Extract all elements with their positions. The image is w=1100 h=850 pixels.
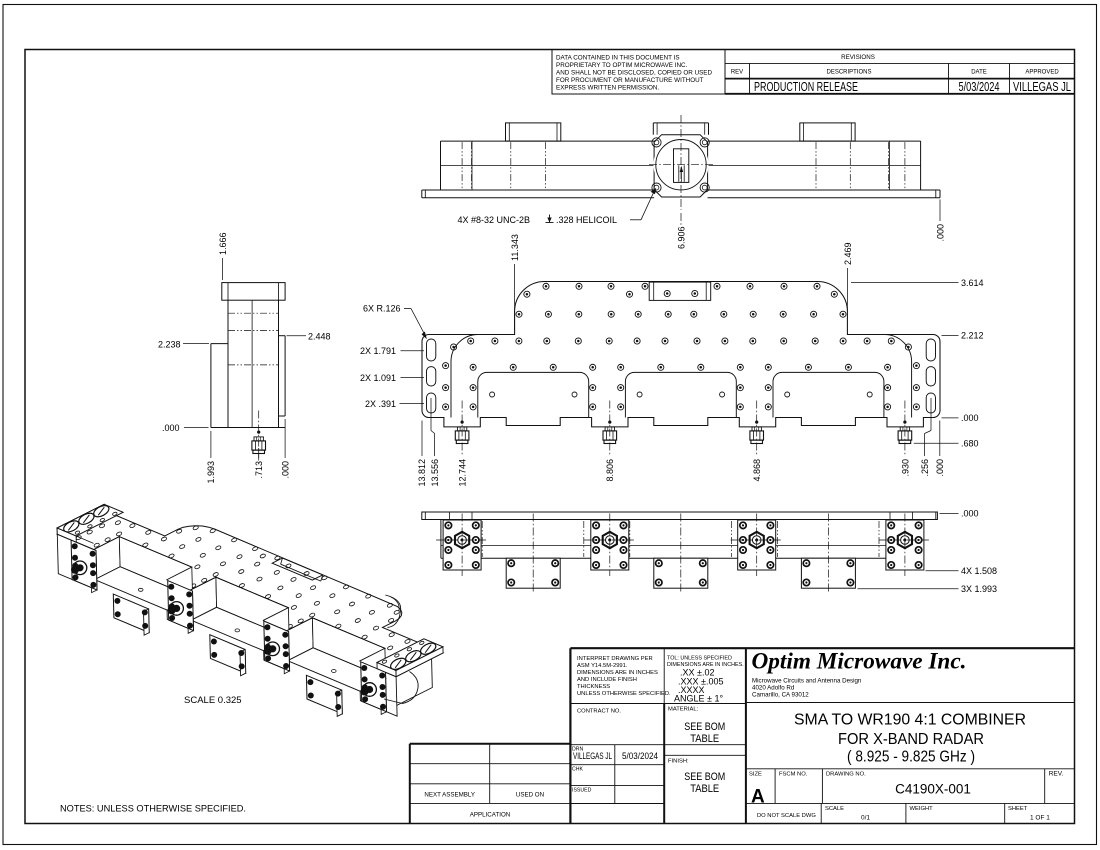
svg-text:2.238: 2.238: [158, 340, 181, 350]
svg-text:VILLEGAS JL: VILLEGAS JL: [573, 751, 612, 761]
svg-text:0/1: 0/1: [861, 815, 870, 822]
svg-text:Microwave Circuits and Antenna: Microwave Circuits and Antenna Design: [752, 678, 862, 685]
svg-text:3.614: 3.614: [961, 278, 984, 288]
svg-text:SCALE 0.325: SCALE 0.325: [184, 695, 242, 706]
svg-text:NOTES: UNLESS OTHERWISE SPECIF: NOTES: UNLESS OTHERWISE SPECIFIED.: [60, 804, 246, 815]
svg-text:C4190X-001: C4190X-001: [895, 782, 971, 797]
svg-text:4020 Adolfo Rd: 4020 Adolfo Rd: [752, 685, 795, 692]
svg-text:1 OF 1: 1 OF 1: [1030, 815, 1050, 822]
svg-text:VILLEGAS JL: VILLEGAS JL: [1013, 80, 1071, 94]
svg-text:5/03/2024: 5/03/2024: [959, 80, 1000, 94]
svg-text:TABLE: TABLE: [690, 733, 719, 745]
svg-text:MATERIAL:: MATERIAL:: [668, 707, 699, 713]
svg-text:.000: .000: [935, 459, 945, 477]
svg-text:DESCRIPTIONS: DESCRIPTIONS: [826, 70, 871, 76]
svg-text:ANGLE ± 1°: ANGLE ± 1°: [674, 694, 723, 704]
svg-text:.680: .680: [961, 439, 979, 449]
svg-text:.713: .713: [254, 461, 264, 479]
svg-text:.000: .000: [280, 461, 290, 479]
svg-text:FOR X-BAND RADAR: FOR X-BAND RADAR: [838, 731, 984, 748]
svg-text:NEXT ASSEMBLY: NEXT ASSEMBLY: [424, 792, 475, 799]
svg-text:.000: .000: [961, 509, 979, 519]
svg-text:6X R.126: 6X R.126: [363, 304, 401, 314]
svg-text:SCALE: SCALE: [825, 806, 844, 812]
svg-text:REVISIONS: REVISIONS: [841, 54, 875, 61]
svg-text:.000: .000: [961, 413, 979, 423]
svg-text:13.556: 13.556: [430, 459, 440, 487]
svg-text:SEE BOM: SEE BOM: [684, 771, 725, 783]
svg-text:DO NOT SCALE DWG: DO NOT SCALE DWG: [757, 813, 816, 819]
svg-text:.000: .000: [162, 423, 180, 433]
svg-text:2.448: 2.448: [308, 332, 331, 342]
svg-text:SIZE: SIZE: [749, 772, 762, 778]
svg-text:THICKNESS: THICKNESS: [577, 684, 610, 690]
svg-text:2X .391: 2X .391: [365, 399, 396, 409]
svg-text:TABLE: TABLE: [690, 783, 719, 795]
svg-text:1.993: 1.993: [206, 461, 216, 484]
svg-text:CONTRACT NO.: CONTRACT NO.: [577, 709, 621, 715]
svg-text:5/03/2024: 5/03/2024: [622, 751, 658, 761]
svg-text:INTERPRET DRAWING PER: INTERPRET DRAWING PER: [577, 656, 653, 662]
svg-text:8.806: 8.806: [605, 459, 615, 482]
svg-text:2X 1.091: 2X 1.091: [360, 373, 396, 383]
svg-text:DIMENSIONS ARE IN INCHES: DIMENSIONS ARE IN INCHES: [577, 670, 658, 676]
svg-text:FOR PROCUMENT OR MANUFACTURE W: FOR PROCUMENT OR MANUFACTURE WITHOUT: [556, 77, 704, 84]
svg-text:DRAWING NO.: DRAWING NO.: [826, 772, 866, 778]
svg-text:APPROVED: APPROVED: [1025, 70, 1059, 76]
svg-text:Camarillo, CA 93012: Camarillo, CA 93012: [752, 692, 809, 699]
svg-text:12.744: 12.744: [458, 459, 468, 487]
svg-text:SMA TO WR190 4:1 COMBINER: SMA TO WR190 4:1 COMBINER: [794, 712, 1026, 729]
svg-text:ISSUED: ISSUED: [572, 788, 592, 794]
svg-text:2X 1.791: 2X 1.791: [360, 346, 396, 356]
svg-text:DATE: DATE: [971, 70, 987, 76]
svg-text:SHEET: SHEET: [1008, 806, 1028, 812]
svg-text:USED ON: USED ON: [516, 792, 544, 799]
svg-text:4X #8-32 UNC-2B: 4X #8-32 UNC-2B: [458, 215, 531, 225]
svg-text:.328 HELICOIL: .328 HELICOIL: [556, 215, 617, 225]
svg-text:Optim Microwave Inc.: Optim Microwave Inc.: [752, 649, 967, 674]
svg-text:PRODUCTION RELEASE: PRODUCTION RELEASE: [754, 79, 858, 94]
svg-text:AND SHALL NOT BE DISCLOSED, CO: AND SHALL NOT BE DISCLOSED, COPIED OR US…: [556, 69, 713, 76]
svg-text:.000: .000: [936, 224, 946, 242]
svg-text:DATA CONTAINED IN THIS DOCUMEN: DATA CONTAINED IN THIS DOCUMENT IS: [556, 55, 680, 62]
svg-text:3X 1.993: 3X 1.993: [961, 584, 997, 594]
svg-text:REV: REV: [731, 70, 743, 76]
svg-text:6.906: 6.906: [677, 227, 687, 250]
svg-text:REV.: REV.: [1049, 771, 1064, 778]
svg-text:11.343: 11.343: [510, 234, 520, 261]
svg-text:APPLICATION: APPLICATION: [470, 812, 510, 819]
svg-text:TOL: UNLESS SPECIFIED: TOL: UNLESS SPECIFIED: [667, 656, 732, 662]
svg-text:4.868: 4.868: [752, 459, 762, 482]
svg-text:2.469: 2.469: [843, 242, 853, 265]
svg-text:UNLESS OTHERWISE SPECIFIED.: UNLESS OTHERWISE SPECIFIED.: [577, 691, 671, 697]
svg-text:4X 1.508: 4X 1.508: [961, 566, 997, 576]
svg-text:13.812: 13.812: [417, 459, 427, 487]
svg-text:( 8.925 - 9.825 GHz ): ( 8.925 - 9.825 GHz ): [847, 749, 975, 766]
svg-text:CHK: CHK: [572, 767, 583, 773]
svg-text:SEE BOM: SEE BOM: [684, 721, 725, 733]
svg-text:AND INCLUDE FINISH: AND INCLUDE FINISH: [577, 677, 637, 683]
svg-text:FSCM NO.: FSCM NO.: [779, 772, 808, 778]
svg-text:EXPRESS WRITTEN PERMISSION.: EXPRESS WRITTEN PERMISSION.: [556, 84, 659, 91]
svg-text:WEIGHT: WEIGHT: [910, 806, 934, 812]
svg-text:PROPRIETARY TO OPTIM MICROWAVE: PROPRIETARY TO OPTIM MICROWAVE INC.: [556, 62, 688, 69]
svg-text:A: A: [751, 787, 765, 808]
svg-text:FINISH:: FINISH:: [668, 759, 689, 765]
svg-text:.930: .930: [900, 459, 910, 477]
svg-text:1.666: 1.666: [218, 232, 228, 255]
svg-text:ASM Y14.5M-2991.: ASM Y14.5M-2991.: [577, 663, 628, 669]
svg-text:2.212: 2.212: [961, 331, 984, 341]
svg-text:.256: .256: [920, 459, 930, 477]
